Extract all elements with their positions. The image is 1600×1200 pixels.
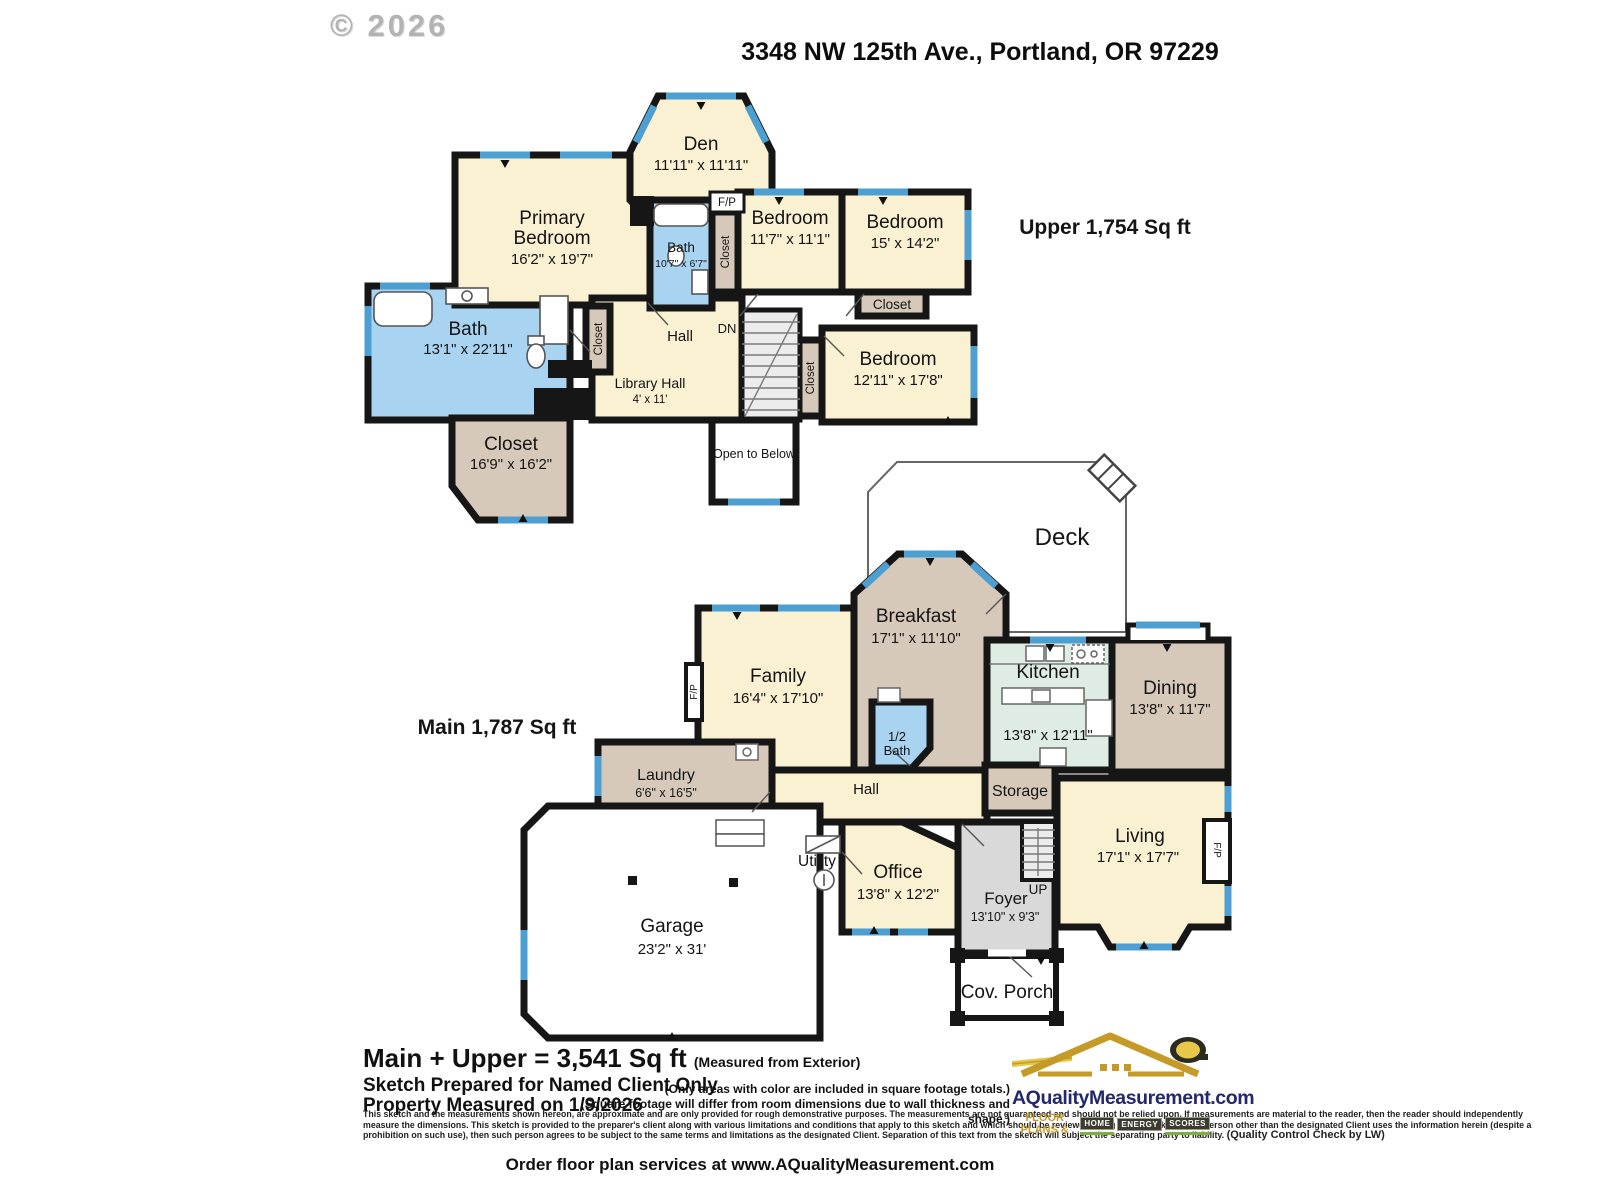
total-note: (Measured from Exterior) xyxy=(694,1054,860,1070)
logo-badge-energy: ENERGY xyxy=(1117,1118,1162,1131)
label-walkin: Closet xyxy=(484,434,539,455)
label-laundry: Laundry xyxy=(637,767,695,784)
label-den: Den xyxy=(684,134,719,155)
label-bath-small-dims: 10'7" x 6'7" xyxy=(655,258,707,270)
footnote-color: (Only areas with color are included in s… xyxy=(560,1082,1010,1097)
label-breakfast: Breakfast xyxy=(876,606,957,627)
badge-bar xyxy=(1165,1132,1210,1135)
label-deck: Deck xyxy=(1035,524,1091,551)
label-foyer-dims: 13'10" x 9'3" xyxy=(971,910,1040,924)
label-cov-porch: Cov. Porch xyxy=(961,982,1054,1003)
floorplan-sheet: © 2026 3348 NW 125th Ave., Portland, OR … xyxy=(0,0,1600,1200)
label-family: Family xyxy=(750,666,806,687)
label-walkin-dims: 16'9" x 16'2" xyxy=(470,456,552,473)
logo-badge-home: HOME xyxy=(1080,1113,1114,1135)
tape-measure-roof-icon xyxy=(1012,1028,1210,1082)
badge-bar xyxy=(1080,1132,1114,1135)
label-dn: DN xyxy=(718,321,737,336)
label-bath-small: Bath xyxy=(667,240,695,255)
label-bedroom1: Bedroom xyxy=(751,208,828,229)
label-bedroom3-dims: 12'11" x 17'8" xyxy=(853,372,943,389)
label-garage-dims: 23'2" x 31' xyxy=(638,941,707,958)
label-bedroom1-dims: 11'7" x 11'1" xyxy=(750,231,830,248)
label-library-hall: Library Hall xyxy=(615,375,686,391)
main-area-label: Main 1,787 Sq ft xyxy=(418,716,577,739)
label-half-bath-1: 1/2 xyxy=(888,729,906,744)
label-bedroom2-dims: 15' x 14'2" xyxy=(871,235,940,252)
label-fp-living: F/P xyxy=(1211,842,1222,858)
label-open-below: Open to Below xyxy=(713,447,796,461)
total-sqft-line: Main + Upper = 3,541 Sq ft (Measured fro… xyxy=(363,1044,1563,1076)
label-closet-b2: Closet xyxy=(873,297,912,312)
label-primary-dims: 16'2" x 19'7" xyxy=(511,251,593,268)
label-foyer: Foyer xyxy=(984,889,1028,908)
legal-fine-print: This sketch and the measurements shown h… xyxy=(363,1109,1561,1141)
label-half-bath-2: Bath xyxy=(884,743,911,758)
label-office: Office xyxy=(873,862,922,883)
total-sqft: Main + Upper = 3,541 Sq ft xyxy=(363,1043,687,1073)
label-closet-b3: Closet xyxy=(805,361,817,394)
label-library-hall-dims: 4' x 11' xyxy=(633,394,668,406)
label-bedroom3: Bedroom xyxy=(859,349,936,370)
label-family-dims: 16'4" x 17'10" xyxy=(733,690,824,707)
upper-area-label: Upper 1,754 Sq ft xyxy=(1019,216,1191,239)
logo-tagline-row: FLOOR PLANS & HOME ENERGY SCORES xyxy=(1012,1112,1210,1136)
label-main-hall: Hall xyxy=(853,781,879,798)
label-garage: Garage xyxy=(640,916,703,937)
label-kitchen: Kitchen xyxy=(1016,662,1079,683)
label-storage: Storage xyxy=(992,783,1048,800)
label-office-dims: 13'8" x 12'2" xyxy=(857,886,939,903)
label-closet-fp: Closet xyxy=(720,235,732,268)
open-to-below xyxy=(712,420,796,502)
label-dining: Dining xyxy=(1143,678,1197,699)
label-den-dims: 11'11" x 11'11" xyxy=(654,157,749,174)
label-bedroom2: Bedroom xyxy=(866,212,943,233)
label-closet-hall: Closet xyxy=(593,322,605,355)
label-utility: Utility xyxy=(798,853,836,870)
tape-reel-icon xyxy=(1170,1037,1208,1063)
label-bath-big: Bath xyxy=(448,319,487,340)
label-fp-upper: F/P xyxy=(718,197,736,209)
logo-domain: AQualityMeasurement.com xyxy=(1012,1087,1210,1110)
label-breakfast-dims: 17'1" x 11'10" xyxy=(871,630,961,647)
floorplan-drawing: Den 11'11" x 11'11" Primary Bedroom 16'2… xyxy=(0,0,1600,1200)
label-upper-hall: Hall xyxy=(667,328,693,345)
label-living: Living xyxy=(1115,826,1165,847)
company-logo: AQualityMeasurement.com FLOOR PLANS & HO… xyxy=(1012,1028,1210,1136)
label-primary-1: Primary xyxy=(519,208,585,229)
label-kitchen-dims: 13'8" x 12'11" xyxy=(1003,727,1093,744)
label-dining-dims: 13'8" x 11'7" xyxy=(1129,701,1210,718)
order-services-line: Order floor plan services at www.AQualit… xyxy=(340,1155,1160,1175)
label-primary-2: Bedroom xyxy=(513,228,590,249)
label-laundry-dims: 6'6" x 16'5" xyxy=(635,786,697,800)
label-living-dims: 17'1" x 17'7" xyxy=(1097,849,1179,866)
label-bath-big-dims: 13'1" x 22'11" xyxy=(423,341,513,358)
quality-control-note: (Quality Control Check by LW) xyxy=(1227,1129,1385,1141)
logo-tagline-prefix: FLOOR PLANS & xyxy=(1012,1112,1077,1136)
logo-badge-scores: SCORES xyxy=(1165,1113,1210,1135)
label-fp-family: F/P xyxy=(689,684,700,700)
label-up: UP xyxy=(1029,882,1048,897)
